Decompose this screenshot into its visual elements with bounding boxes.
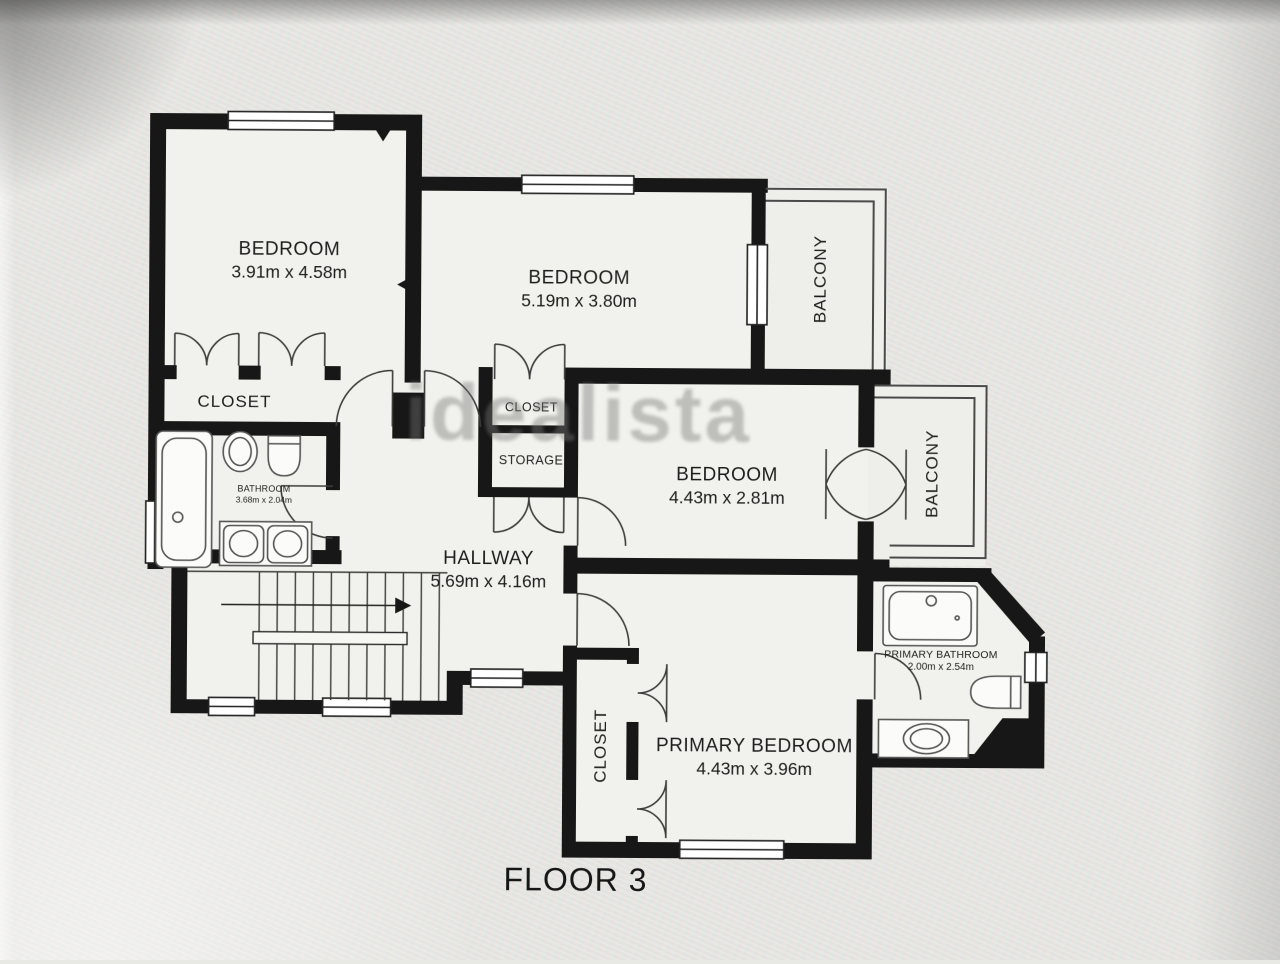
bedroom2-label: BEDROOM 5.19m x 3.80m [521,266,637,312]
bedroom1-name: BEDROOM [231,238,347,262]
hallway-name: HALLWAY [431,547,547,571]
floor-plan-photo: BEDROOM 3.91m x 4.58m BEDROOM 5.19m x 3.… [0,0,1280,960]
bedroom3-name: BEDROOM [669,463,785,487]
primary-bedroom-name: PRIMARY BEDROOM [656,734,853,759]
bedroom3-label: BEDROOM 4.43m x 2.81m [669,463,785,509]
window-stairs-2 [323,698,391,716]
bathroom-label: BATHROOM 3.68m x 2.04m [236,484,292,506]
closet1-label: CLOSET [197,391,271,413]
bathroom-name: BATHROOM [236,484,292,496]
primary-bathroom-dims: 2.00m x 2.54m [884,662,998,675]
bedroom3-dims: 4.43m x 2.81m [669,487,785,510]
balcony-door-bedroom2 [747,245,767,325]
balcony-top-label: BALCONY [809,235,831,323]
primary-bedroom-dims: 4.43m x 3.96m [656,758,853,781]
bedroom1-label: BEDROOM 3.91m x 4.58m [231,238,347,284]
closet-primary-label: CLOSET [590,709,612,783]
floor-plan-drawing [0,0,1280,964]
bathtub [155,431,212,567]
window-primary-bath [1025,652,1047,682]
bedroom1-dims: 3.91m x 4.58m [231,261,347,284]
double-sink-vanity [219,521,311,566]
shower [883,585,977,646]
primary-bathroom-label: PRIMARY BATHROOM 2.00m x 2.54m [884,649,998,675]
window-stairs-1 [209,697,255,715]
primary-bedroom-label: PRIMARY BEDROOM 4.43m x 3.96m [656,734,853,781]
floor-title: FLOOR 3 [503,861,647,899]
bedroom2-name: BEDROOM [521,266,637,290]
bidet [268,436,300,476]
hallway-label: HALLWAY 5.69m x 4.16m [430,547,546,593]
window-bedroom2-top [522,175,634,194]
toilet [223,431,257,471]
window-bedroom1-top [228,111,334,130]
hallway-dims: 5.69m x 4.16m [430,571,546,594]
window-primary-bottom [680,840,784,859]
wall-hung-toilet [971,676,1021,708]
primary-bathroom-name: PRIMARY BATHROOM [884,649,998,663]
bedroom2-dims: 5.19m x 3.80m [521,290,637,313]
floor-plan: BEDROOM 3.91m x 4.58m BEDROOM 5.19m x 3.… [0,0,1280,964]
bathroom-dims: 3.68m x 2.04m [236,495,292,506]
balcony-right-label: BALCONY [921,430,943,518]
vanity-sink [878,719,968,758]
idealista-watermark: idealista [405,367,753,461]
window-hallway-bottom [471,669,523,687]
